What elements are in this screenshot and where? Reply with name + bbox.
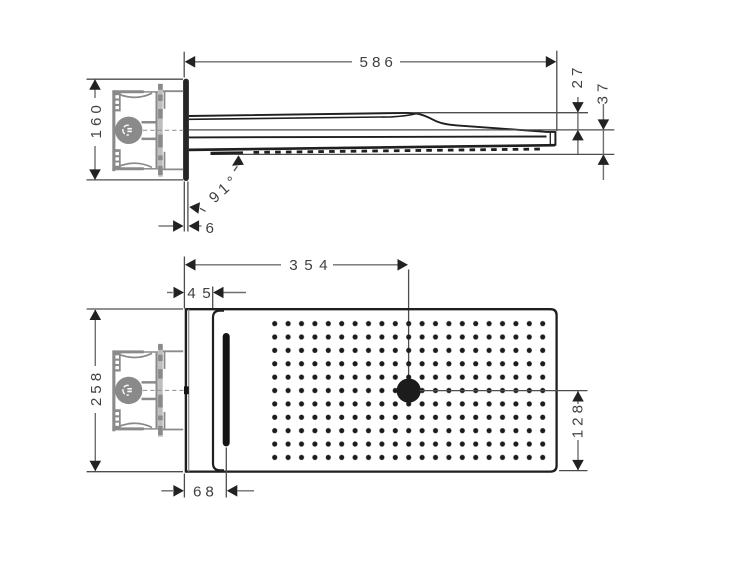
svg-text:128: 128 [569,401,586,438]
svg-text:6: 6 [206,220,218,237]
svg-text:27: 27 [569,64,586,89]
svg-text:354: 354 [289,257,334,274]
svg-text:37: 37 [595,80,612,105]
svg-text:68: 68 [193,483,218,500]
svg-text:258: 258 [88,369,105,406]
svg-text:160: 160 [88,101,105,138]
svg-text:45: 45 [187,285,217,302]
svg-text:586: 586 [360,54,397,71]
